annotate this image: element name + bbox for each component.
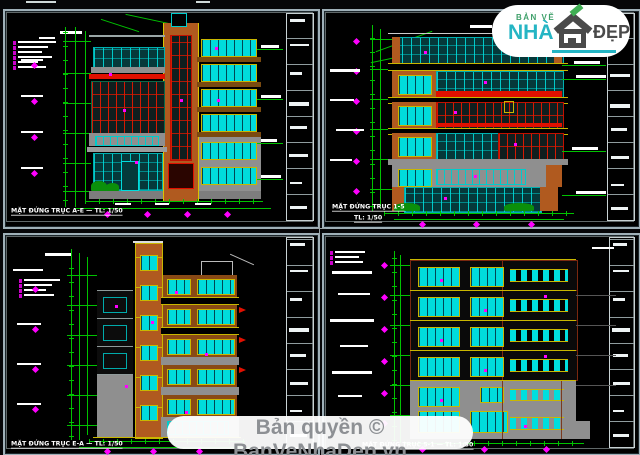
window-outline (103, 353, 127, 369)
tower-window (168, 163, 194, 189)
title-block-bar (613, 434, 629, 437)
leader-line (257, 179, 283, 180)
level-line (370, 189, 392, 190)
title-block-bar (613, 410, 624, 412)
dim-text (330, 159, 352, 161)
spandrel (197, 132, 261, 137)
title-block-bar (290, 243, 305, 246)
legend-marker (13, 56, 16, 60)
window-outline (103, 325, 127, 341)
leader-line (257, 99, 283, 100)
facade-grid-line (502, 381, 503, 439)
dim-text (155, 203, 169, 205)
dim-text (332, 271, 372, 274)
leader-line (576, 355, 616, 356)
legend-text-bar (18, 41, 56, 43)
legend-text-bar (24, 284, 52, 286)
legend-text-bar (18, 51, 42, 53)
dim-line (384, 213, 574, 214)
annotation-dot (151, 321, 154, 324)
window-row (436, 169, 526, 185)
leader-line (562, 151, 606, 152)
annotation-dot (205, 353, 208, 356)
title-block-bar (290, 44, 309, 46)
window-band (398, 169, 432, 187)
legend-text-bar (335, 251, 365, 253)
window-band (201, 64, 257, 82)
window (197, 309, 235, 325)
window-band (398, 106, 432, 126)
slab-band (161, 387, 239, 395)
small-window-row (510, 389, 564, 401)
spandrel (197, 57, 261, 62)
sheet-edge-mark (196, 1, 210, 3)
leader-line (257, 143, 283, 144)
annotation-dot (217, 99, 220, 102)
dim-line (75, 27, 76, 207)
annotation-dot (514, 143, 517, 146)
window (167, 369, 191, 385)
window-band (201, 142, 257, 160)
grid-marker (150, 448, 157, 455)
title-block-bar (290, 354, 306, 357)
leader-line (576, 295, 616, 296)
drawing-caption: MẶT ĐỨNG TRỤC 1-5 (332, 203, 405, 212)
annotation-dot (484, 81, 487, 84)
title-block-bar (611, 184, 624, 186)
level-line (63, 163, 91, 164)
legend-marker (13, 41, 16, 45)
level-line (63, 73, 91, 74)
level-line (67, 305, 97, 306)
level-line (67, 365, 97, 366)
annotation-dot (185, 411, 188, 414)
title-block-bar (613, 298, 625, 301)
dim-text (338, 293, 370, 295)
title-block-bar (611, 207, 628, 210)
level-line (63, 133, 91, 134)
window-band (201, 39, 257, 57)
annotation-dot (444, 197, 447, 200)
wall-step (576, 421, 590, 439)
legend-marker (13, 51, 16, 55)
title-block-bar (290, 126, 307, 129)
facade-grid-line (561, 381, 562, 439)
window-band (418, 297, 460, 317)
annotation-dot (440, 339, 443, 342)
window-band (418, 267, 460, 287)
window-band (470, 267, 504, 287)
level-line (63, 191, 91, 192)
dim-text (330, 99, 354, 101)
window-band (418, 327, 460, 347)
level-line (390, 325, 412, 326)
annotation-dot (484, 309, 487, 312)
leader-line (576, 325, 616, 326)
legend-text-bar (24, 279, 60, 281)
slab-band (161, 327, 239, 335)
title-block-bar (613, 243, 627, 246)
legend-text-bar (18, 46, 48, 48)
dim-text (330, 69, 360, 72)
window-band (201, 167, 257, 185)
window (480, 387, 504, 403)
tower-glazing (170, 35, 192, 161)
red-arrow (239, 307, 246, 313)
window-band (418, 357, 460, 377)
spandrel (197, 82, 261, 87)
title-block-bar (290, 206, 307, 209)
window-band (470, 357, 504, 377)
detail-box (504, 101, 514, 113)
dim-ticks (370, 29, 375, 207)
leader-line (562, 65, 606, 66)
grid-marker (473, 221, 480, 228)
level-line (67, 425, 97, 426)
dim-text (261, 139, 277, 142)
window-band (470, 297, 504, 317)
small-window-row (510, 269, 568, 282)
legend-marker (19, 294, 22, 298)
plant (91, 181, 107, 191)
red-arrow (239, 337, 246, 343)
title-block-bar (611, 156, 629, 159)
title-block-bar (611, 128, 627, 131)
dim-line (380, 29, 381, 207)
dim-text (195, 203, 211, 205)
annotation-dot (175, 291, 178, 294)
drawing-caption: MẶT ĐỨNG TRỤC E-A — TL: 1/50 (11, 440, 123, 449)
slab-band (91, 67, 165, 73)
title-block-bar (610, 74, 630, 77)
annotation-dot (524, 425, 527, 428)
dim-text (17, 363, 41, 365)
window-band (398, 137, 432, 157)
window-band (398, 75, 432, 95)
window (140, 315, 158, 331)
plant (106, 183, 119, 191)
small-window-row (510, 417, 564, 430)
small-window-row (510, 299, 568, 312)
legend-marker (330, 251, 333, 255)
dim-text (332, 371, 372, 374)
dim-text (45, 253, 71, 256)
legend-marker (330, 261, 333, 265)
dim-text (576, 75, 606, 78)
logo-underline (552, 50, 616, 53)
red-arrow (239, 367, 246, 373)
legend-marker (13, 46, 16, 50)
grid-marker (104, 448, 111, 455)
dim-text (574, 61, 600, 64)
annotation-dot (115, 305, 118, 308)
pier (546, 165, 562, 187)
dim-line (85, 31, 86, 201)
title-block-bar (289, 328, 309, 332)
dim-text (572, 147, 598, 150)
title-block-bar (290, 410, 302, 412)
dim-ticks (69, 255, 74, 437)
door (121, 161, 139, 191)
crosshair-mark (319, 222, 320, 235)
title-block-bar (612, 328, 630, 332)
title-block-bar (289, 102, 309, 106)
window (140, 255, 158, 271)
window (167, 309, 191, 325)
legend-marker (19, 289, 22, 293)
legend-marker (19, 284, 22, 288)
annotation-dot (109, 73, 112, 76)
dim-line (394, 219, 564, 220)
level-line (390, 295, 412, 296)
dim-text (340, 345, 368, 347)
title-block-bar (290, 298, 302, 301)
window-band (201, 89, 257, 107)
drawing-scale: TL: 1/50 (354, 214, 382, 223)
dim-text (261, 175, 281, 178)
dim-text (21, 131, 43, 133)
window (197, 339, 235, 355)
window-band (470, 327, 504, 347)
floor-line (410, 320, 576, 321)
logo-text-dep: ĐẸP (593, 22, 630, 43)
panel-elevation-a-e: MẶT ĐỨNG TRỤC A-E — TL: 1/50 (3, 9, 320, 229)
sheet-edge-mark (26, 1, 56, 3)
red-band (436, 123, 562, 127)
pier (540, 187, 558, 211)
level-line (390, 355, 412, 356)
dim-text (336, 129, 364, 131)
red-band (89, 74, 165, 79)
level-line (390, 385, 412, 386)
annotation-dot (544, 295, 547, 298)
leader-line (257, 49, 283, 50)
floor-line (410, 290, 576, 291)
annotation-dot (215, 47, 218, 50)
annotation-dot (135, 161, 138, 164)
cad-sheet: MẶT ĐỨNG TRỤC A-E — TL: 1/50 (0, 0, 640, 455)
dim-text (13, 269, 43, 271)
annotation-dot (424, 51, 427, 54)
title-block-bar (290, 382, 308, 385)
dim-text (39, 37, 55, 39)
window (140, 405, 158, 421)
spandrel (197, 107, 261, 112)
dim-ticks (63, 31, 68, 201)
roof-slab (89, 35, 165, 37)
level-line (63, 103, 91, 104)
legend-marker (330, 256, 333, 260)
dim-text (17, 403, 41, 405)
house-door (568, 38, 576, 48)
title-block (286, 13, 314, 221)
window (197, 279, 235, 295)
window (167, 279, 191, 295)
window (140, 375, 158, 391)
level-line (63, 41, 91, 42)
window (167, 339, 191, 355)
logo-text-nha: NHÀ (508, 21, 554, 45)
level-line (390, 265, 412, 266)
dim-text (21, 59, 43, 61)
dim-text (21, 167, 43, 169)
title-block (609, 237, 635, 448)
legend-marker (13, 61, 16, 65)
annotation-dot (544, 355, 547, 358)
roof-box (171, 13, 187, 27)
dim-text (330, 319, 374, 322)
dim-line (79, 253, 80, 440)
window-band (93, 47, 165, 69)
legend-text-bar (24, 294, 54, 296)
legend-text-bar (335, 261, 363, 263)
annotation-dot (123, 109, 126, 112)
title-block-bar (290, 270, 308, 272)
canopy (87, 147, 167, 152)
watermark-logo: BẢN VẼ NHÀ ĐẸP (492, 5, 630, 57)
plant (504, 203, 534, 211)
slab-band (388, 63, 568, 71)
title-block-bar (289, 154, 308, 157)
window (197, 399, 235, 415)
annotation-dot (454, 111, 457, 114)
level-line (67, 335, 97, 336)
dim-text (338, 395, 362, 397)
annotation-dot (484, 369, 487, 372)
level-line (67, 395, 97, 396)
window (197, 369, 235, 385)
title-block-bar (610, 104, 630, 108)
legend-marker (13, 66, 16, 70)
slab-band (161, 297, 239, 305)
dim-ticks (392, 255, 397, 441)
title-block-bar (290, 19, 305, 22)
dim-text (261, 45, 279, 48)
annotation-dot (180, 99, 183, 102)
title-block-bar (613, 270, 629, 272)
copyright-banner[interactable]: Bản quyền © BanVeNhaDep.vn (167, 416, 473, 449)
dim-text (115, 203, 131, 205)
annotation-dot (440, 399, 443, 402)
curtain-wall (91, 81, 165, 135)
dim-text (17, 323, 41, 325)
level-line (67, 275, 97, 276)
leader-line (562, 79, 606, 80)
small-window-row (510, 359, 568, 372)
grid-marker (419, 221, 426, 228)
legend-text-bar (18, 56, 52, 58)
pier (392, 37, 400, 63)
window (140, 345, 158, 361)
grid-marker (196, 448, 203, 455)
drawing-caption: MẶT ĐỨNG TRỤC A-E — TL: 1/50 (11, 207, 123, 216)
legend-text-bar (335, 256, 359, 258)
curtain-wall (498, 133, 564, 161)
title-block-bar (290, 182, 302, 184)
window-band (418, 387, 460, 407)
leader-line (576, 385, 616, 386)
dim-line (87, 257, 88, 435)
dim-text (470, 25, 492, 28)
small-window-row (510, 329, 568, 342)
dim-text (592, 247, 614, 249)
legend-marker (19, 279, 22, 283)
window-band (436, 133, 500, 161)
leader-line (562, 195, 606, 196)
grid-marker (528, 221, 535, 228)
window (140, 285, 158, 301)
title-block-bar (290, 72, 302, 75)
window-band (201, 114, 257, 132)
dim-text (21, 95, 43, 97)
dim-text (576, 191, 606, 194)
dim-text (261, 95, 281, 98)
level-line (370, 39, 392, 40)
slab-band (161, 357, 239, 365)
annotation-dot (125, 385, 128, 388)
annotation-dot (440, 279, 443, 282)
annotation-dot (474, 175, 477, 178)
window-row (95, 136, 159, 146)
dim-line (85, 201, 263, 202)
floor-line (410, 350, 576, 351)
house-icon (550, 9, 596, 51)
